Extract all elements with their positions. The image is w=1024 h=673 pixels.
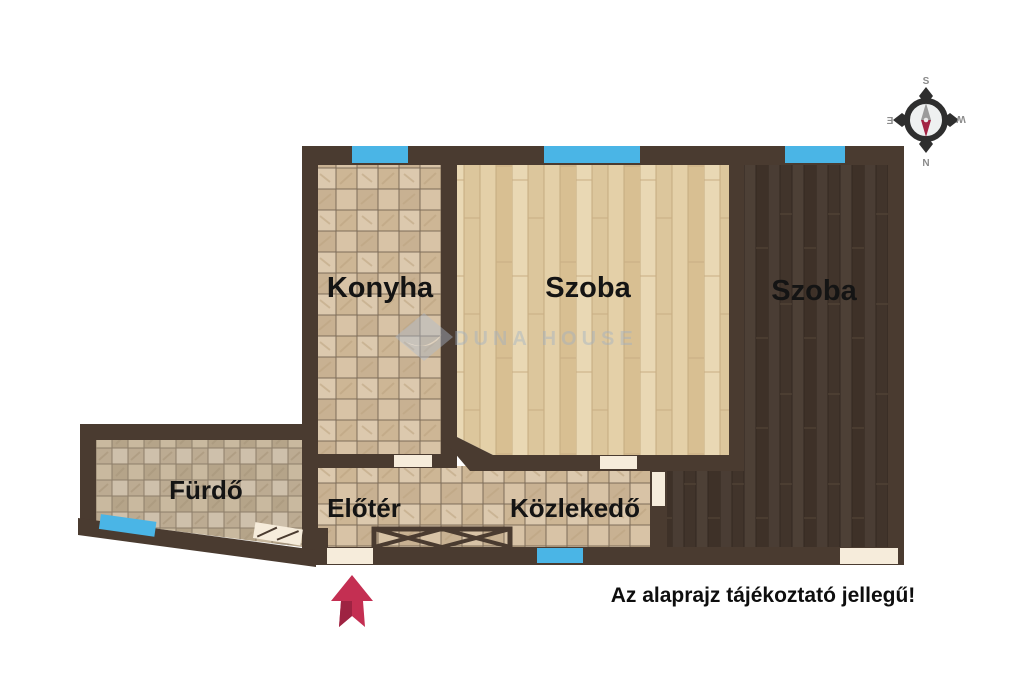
window-szoba-2 [785, 146, 845, 163]
wall-szoba-szoba [729, 164, 744, 471]
wall-konyha-szoba [441, 164, 457, 458]
floor-plan: Konyha Szoba Szoba Fürdő Előtér Közleked… [0, 0, 1024, 673]
wall-furdo-top [80, 424, 304, 440]
entrance-arrow-icon [331, 575, 373, 627]
compass-letter-right: W [956, 113, 966, 124]
door-entrance [327, 548, 373, 564]
disclaimer-text: Az alaprajz tájékoztató jellegű! [611, 584, 916, 607]
compass-letter-bottom: N [922, 158, 929, 169]
label-konyha: Konyha [327, 272, 434, 304]
compass-letter-left: E [886, 116, 893, 127]
room-szoba-1-floor [457, 165, 729, 455]
door-szoba-1 [600, 456, 637, 469]
label-eloter: Előtér [327, 493, 401, 523]
watermark-text: DUNA HOUSE [454, 328, 638, 350]
wall-left [302, 146, 318, 565]
room-konyha-floor [318, 165, 441, 455]
wall-konyha-eloter [302, 454, 457, 468]
floor-plan-page: Konyha Szoba Szoba Fürdő Előtér Közleked… [0, 0, 1024, 673]
opening-bottom-right [840, 548, 898, 564]
label-furdo: Fürdő [169, 475, 243, 505]
window-kozlekedo [537, 548, 583, 563]
label-szoba-1: Szoba [545, 272, 631, 304]
compass-pivot-icon [924, 118, 929, 123]
window-konyha [352, 146, 408, 163]
wall-right [888, 146, 904, 565]
door-szoba-2 [652, 472, 665, 506]
wall-furdo-left [80, 424, 96, 528]
compass-letter-top: S [923, 76, 930, 87]
door-konyha [394, 455, 432, 467]
label-kozlekedo: Közlekedő [510, 493, 640, 523]
wall-entrance-pier [310, 528, 328, 548]
wall-bottom [302, 547, 904, 565]
label-szoba-2: Szoba [771, 275, 857, 307]
window-szoba-1 [544, 146, 640, 163]
